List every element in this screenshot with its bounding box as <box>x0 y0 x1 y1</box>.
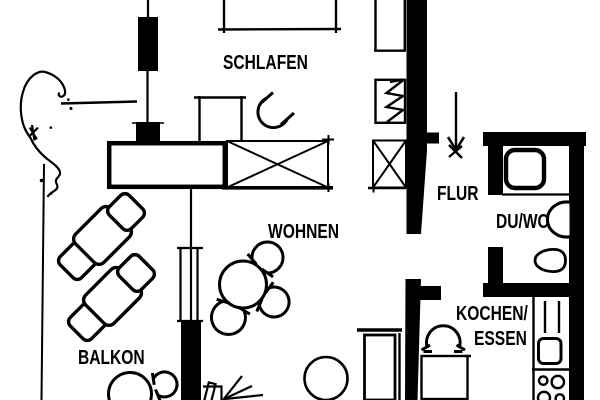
svg-text:DU/WC: DU/WC <box>496 210 549 232</box>
svg-text:BALKON: BALKON <box>78 346 145 368</box>
svg-text:FLUR: FLUR <box>437 182 479 204</box>
svg-text:KOCHEN/: KOCHEN/ <box>456 302 528 324</box>
svg-text:WOHNEN: WOHNEN <box>268 220 339 242</box>
svg-text:SCHLAFEN: SCHLAFEN <box>223 51 308 73</box>
svg-text:ESSEN: ESSEN <box>474 327 527 349</box>
